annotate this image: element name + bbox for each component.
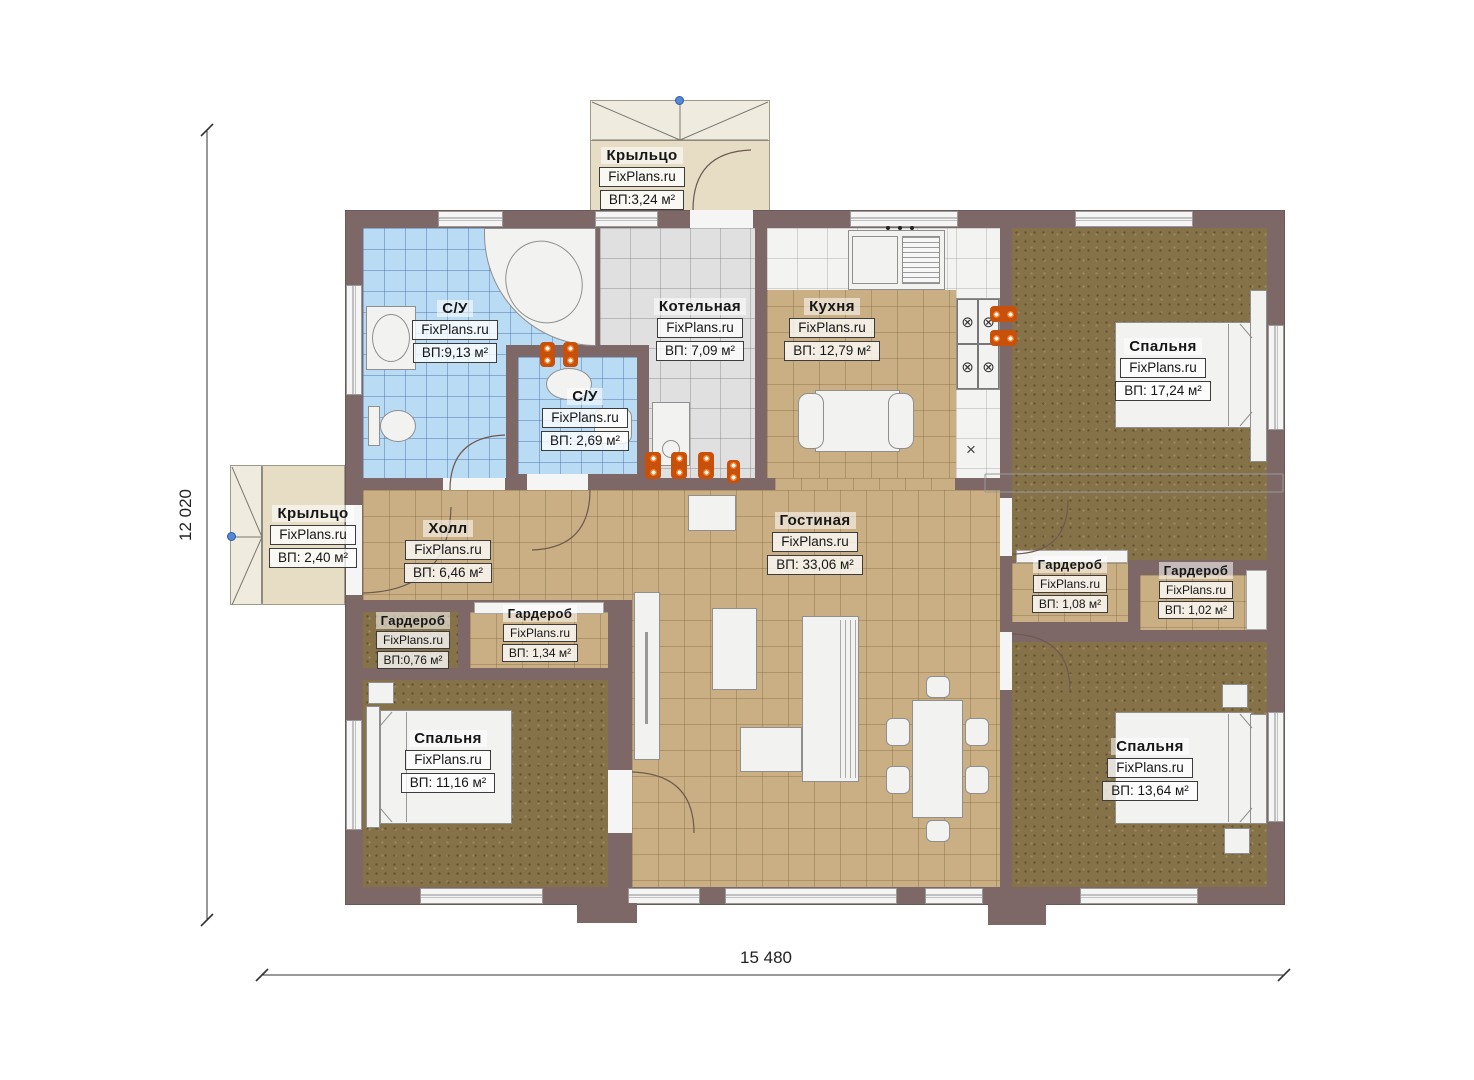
- vestibule-floor: [1012, 478, 1267, 560]
- room-label-bedroom-br: Спальня FixPlans.ru ВП: 13,64 м²: [1075, 738, 1225, 801]
- window: [850, 211, 958, 227]
- room-name: Гардероб: [376, 612, 451, 629]
- dining-chair: [886, 766, 910, 794]
- dining-table: [912, 700, 963, 818]
- snap-point-icon: [675, 96, 684, 105]
- entrance-door-opening: [690, 210, 753, 228]
- room-name: Гардероб: [1033, 556, 1108, 573]
- watermark: FixPlans.ru: [1159, 581, 1233, 599]
- kitchen-chair: [888, 393, 914, 449]
- tv-screen: [645, 632, 648, 724]
- radiator-icon: [563, 342, 578, 367]
- watermark: FixPlans.ru: [1120, 358, 1206, 378]
- dining-chair: [965, 766, 989, 794]
- watermark: FixPlans.ru: [599, 167, 685, 187]
- room-label-boiler: Котельная FixPlans.ru ВП: 7,09 м²: [625, 298, 775, 361]
- nightstand: [1224, 828, 1250, 854]
- door-opening: [608, 770, 632, 833]
- dining-chair: [926, 820, 950, 842]
- entrance-mat: [688, 495, 736, 531]
- room-area: ВП: 1,08 м²: [1032, 595, 1108, 613]
- room-name: Крыльцо: [601, 147, 682, 164]
- chimney-block: [577, 903, 637, 923]
- room-name: Гардероб: [1159, 562, 1234, 579]
- room-label-porch-left: Крыльцо FixPlans.ru ВП: 2,40 м²: [238, 505, 388, 568]
- radiator-icon: [990, 306, 1017, 322]
- room-name: Спальня: [409, 730, 487, 747]
- dining-chair: [965, 718, 989, 746]
- toilet-tank: [368, 406, 380, 446]
- room-label-ward-102: Гардероб FixPlans.ru ВП: 1,02 м²: [1134, 562, 1258, 619]
- nightstand: [368, 682, 394, 704]
- room-name: Гардероб: [503, 605, 578, 622]
- floor-plan-page: ⊗ ⊗ ⊗ ⊗ ×: [0, 0, 1474, 1080]
- room-label-bath-small: С/У FixPlans.ru ВП: 2,69 м²: [510, 388, 660, 451]
- room-name: Спальня: [1111, 738, 1189, 755]
- room-area: ВП: 7,09 м²: [656, 341, 744, 361]
- kitchen-sink-basin: [852, 236, 898, 284]
- watermark: FixPlans.ru: [542, 408, 628, 428]
- room-label-bedroom-bl: Спальня FixPlans.ru ВП: 11,16 м²: [373, 730, 523, 793]
- window: [346, 285, 362, 395]
- toilet-bowl: [380, 410, 416, 442]
- room-area: ВП: 2,40 м²: [269, 548, 357, 568]
- watermark: FixPlans.ru: [412, 320, 498, 340]
- radiator-icon: [990, 330, 1017, 346]
- chimney-block: [988, 903, 1046, 925]
- room-label-porch-top: Крыльцо FixPlans.ru ВП:3,24 м²: [567, 147, 717, 210]
- watermark: FixPlans.ru: [1033, 575, 1107, 593]
- room-area: ВП: 1,34 м²: [502, 644, 578, 662]
- room-area: ВП:3,24 м²: [600, 190, 684, 210]
- room-area: ВП: 6,46 м²: [404, 563, 492, 583]
- room-label-bath-big: С/У FixPlans.ru ВП:9,13 м²: [380, 300, 530, 363]
- window: [725, 888, 897, 904]
- room-area: ВП: 2,69 м²: [541, 431, 629, 451]
- room-label-ward-134: Гардероб FixPlans.ru ВП: 1,34 м²: [478, 605, 602, 662]
- snap-point-icon: [227, 532, 236, 541]
- window: [438, 211, 503, 227]
- room-name: Крыльцо: [272, 505, 353, 522]
- room-name: Кухня: [804, 298, 860, 315]
- room-area: ВП: 33,06 м²: [767, 555, 863, 575]
- room-area: ВП: 11,16 м²: [401, 773, 496, 793]
- dimension-horizontal: 15 480: [740, 948, 792, 968]
- sofa-back-cushions: [840, 620, 856, 778]
- dining-chair: [886, 718, 910, 746]
- radiator-icon: [698, 452, 714, 479]
- watermark: FixPlans.ru: [405, 540, 491, 560]
- room-label-kitchen: Кухня FixPlans.ru ВП: 12,79 м²: [757, 298, 907, 361]
- room-label-living: Гостиная FixPlans.ru ВП: 33,06 м²: [740, 512, 890, 575]
- faucet-dot: [886, 226, 890, 230]
- watermark: FixPlans.ru: [376, 631, 450, 649]
- window: [628, 888, 700, 904]
- sideboard: [712, 608, 757, 690]
- room-name: С/У: [437, 300, 473, 317]
- door-opening: [443, 478, 505, 490]
- window: [346, 720, 362, 830]
- room-area: ВП: 12,79 м²: [784, 341, 880, 361]
- kitchen-chair: [798, 393, 824, 449]
- room-area: ВП: 1,02 м²: [1158, 601, 1234, 619]
- watermark: FixPlans.ru: [772, 532, 858, 552]
- window: [925, 888, 983, 904]
- bed-pillow-line: [1228, 714, 1229, 822]
- cross-mark: ×: [966, 440, 976, 460]
- dining-chair: [926, 676, 950, 698]
- radiator-icon: [671, 452, 687, 479]
- dimension-vertical: 12 020: [176, 489, 196, 541]
- radiator-icon: [727, 460, 740, 483]
- faucet-dot: [910, 226, 914, 230]
- room-label-ward-108: Гардероб FixPlans.ru ВП: 1,08 м²: [1008, 556, 1132, 613]
- window: [1080, 888, 1198, 904]
- room-area: ВП:9,13 м²: [413, 343, 497, 363]
- window: [1075, 211, 1193, 227]
- watermark: FixPlans.ru: [503, 624, 577, 642]
- nightstand: [1222, 684, 1248, 708]
- room-name: Котельная: [654, 298, 746, 315]
- burner-icon: ⊗: [978, 344, 999, 389]
- porch-top-steps: [590, 100, 770, 142]
- window: [1268, 712, 1284, 822]
- kitchen-living-opening: [775, 478, 955, 490]
- room-label-ward-076: Гардероб FixPlans.ru ВП:0,76 м²: [351, 612, 475, 669]
- room-name: Гостиная: [775, 512, 856, 529]
- window: [595, 211, 658, 227]
- burner-icon: ⊗: [957, 299, 978, 344]
- kitchen-drainer: [902, 236, 940, 284]
- room-name: С/У: [567, 388, 603, 405]
- window: [1268, 325, 1284, 430]
- window: [420, 888, 543, 904]
- room-name: Спальня: [1124, 338, 1202, 355]
- door-opening: [1000, 632, 1012, 690]
- burner-icon: ⊗: [957, 344, 978, 389]
- watermark: FixPlans.ru: [405, 750, 491, 770]
- room-name: Холл: [423, 520, 472, 537]
- bed-headboard: [1250, 290, 1267, 462]
- watermark: FixPlans.ru: [657, 318, 743, 338]
- room-area: ВП: 17,24 м²: [1115, 381, 1211, 401]
- radiator-icon: [540, 342, 555, 367]
- room-area: ВП: 13,64 м²: [1102, 781, 1198, 801]
- watermark: FixPlans.ru: [1107, 758, 1193, 778]
- door-opening: [1000, 498, 1012, 556]
- watermark: FixPlans.ru: [270, 525, 356, 545]
- room-label-hall: Холл FixPlans.ru ВП: 6,46 м²: [373, 520, 523, 583]
- bed-headboard: [1250, 714, 1267, 824]
- door-opening: [527, 474, 588, 490]
- watermark: FixPlans.ru: [789, 318, 875, 338]
- faucet-dot: [898, 226, 902, 230]
- room-label-bedroom-tr: Спальня FixPlans.ru ВП: 17,24 м²: [1088, 338, 1238, 401]
- room-area: ВП:0,76 м²: [377, 651, 450, 669]
- coffee-table: [740, 727, 802, 772]
- radiator-icon: [645, 452, 661, 479]
